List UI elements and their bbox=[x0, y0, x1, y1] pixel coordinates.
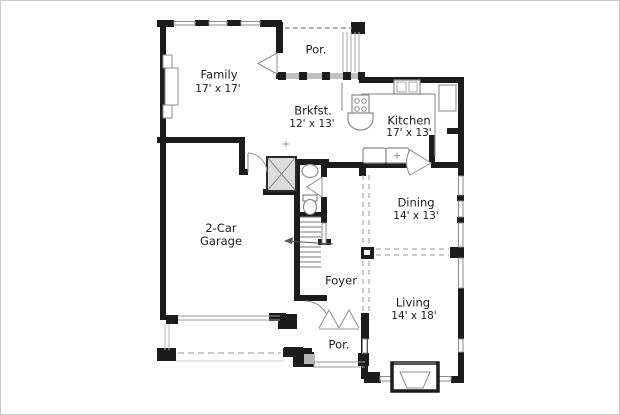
dining-window bbox=[459, 176, 464, 195]
powder-door bbox=[307, 177, 322, 197]
range-cooktop bbox=[348, 95, 373, 130]
dims-breakfast: 12' x 13' bbox=[289, 118, 334, 130]
label-dining: Dining bbox=[397, 196, 434, 209]
kitchen-island bbox=[363, 148, 409, 163]
refrigerator bbox=[439, 85, 456, 111]
living-window bbox=[459, 258, 464, 288]
living-fireplace bbox=[392, 363, 438, 391]
family-porch-door bbox=[258, 53, 277, 74]
label-garage-line2: Garage bbox=[200, 235, 242, 248]
family-window bbox=[174, 22, 195, 26]
entry-door-right bbox=[339, 310, 359, 328]
family-fireplace bbox=[163, 55, 178, 118]
label-family: Family bbox=[200, 68, 237, 81]
floor-plan: Family 17' x 17' Por. Brkfst. 12' x 13' … bbox=[0, 0, 620, 415]
garage-door-area bbox=[165, 316, 284, 361]
toilet-bowl bbox=[304, 200, 317, 215]
label-porch-bottom: Por. bbox=[329, 338, 350, 351]
powder-sink bbox=[302, 165, 318, 178]
entry bbox=[305, 301, 359, 329]
porch-steps bbox=[343, 32, 359, 72]
garage-door-swing bbox=[248, 153, 267, 172]
label-breakfast: Brkfst. bbox=[294, 104, 331, 117]
label-kitchen: Kitchen bbox=[387, 114, 430, 127]
dims-family: 17' x 17' bbox=[195, 83, 240, 95]
kitchen-sink bbox=[394, 80, 420, 94]
label-garage: 2-Car Garage bbox=[200, 222, 242, 248]
dims-living: 14' x 18' bbox=[391, 310, 436, 322]
hall-half-wall bbox=[322, 223, 326, 244]
label-living: Living bbox=[396, 296, 430, 309]
family-top-corner bbox=[157, 20, 174, 27]
bottom-porch-edges bbox=[314, 362, 365, 367]
entry-door-left bbox=[319, 310, 339, 328]
garage-top-wall bbox=[157, 137, 245, 143]
dining-column-core bbox=[364, 250, 370, 255]
dims-kitchen: 17' x 13' bbox=[386, 127, 431, 139]
driveway-block-left bbox=[157, 348, 176, 361]
label-porch-top: Por. bbox=[306, 43, 327, 56]
label-foyer: Foyer bbox=[325, 274, 357, 287]
porch-step-shading bbox=[304, 354, 315, 364]
dims-dining: 14' x 13' bbox=[393, 210, 438, 222]
fixture-marks bbox=[283, 141, 289, 147]
floor-plan-drawing bbox=[1, 1, 620, 415]
porch-bottom-wall bbox=[278, 73, 365, 79]
bar-bullnose bbox=[348, 113, 373, 130]
kitchen-dining-door bbox=[406, 150, 431, 175]
porch-corner-post bbox=[351, 22, 365, 34]
powder-room bbox=[302, 165, 322, 215]
mud-area bbox=[248, 153, 296, 191]
